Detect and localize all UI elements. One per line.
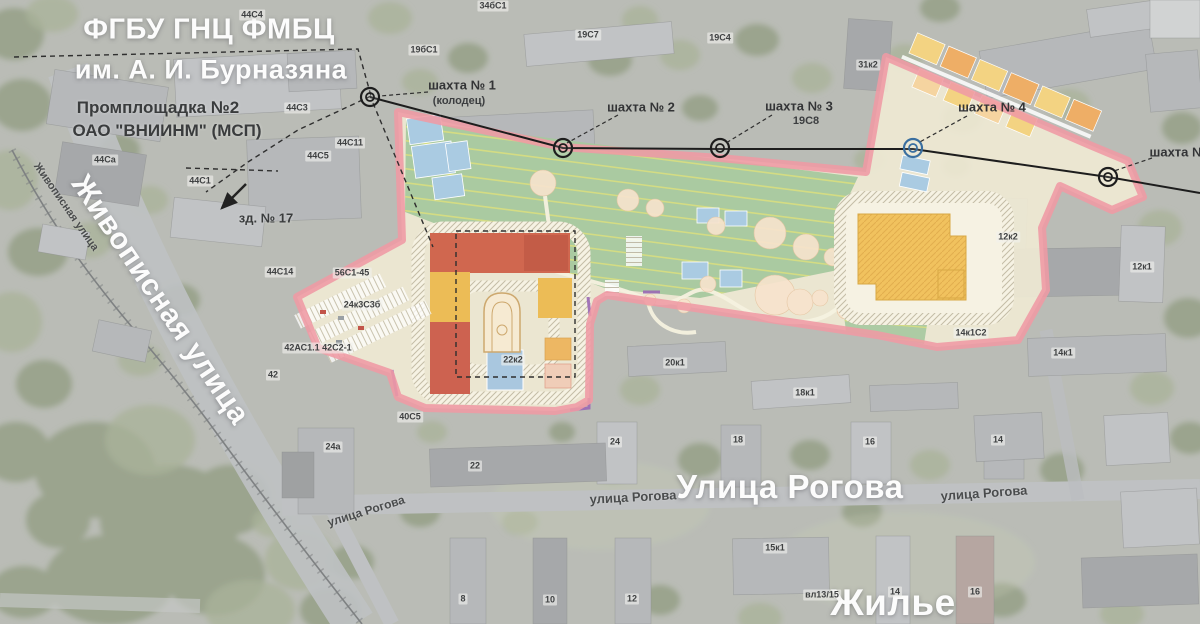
shaft-label-5: шахта № (1150, 145, 1200, 160)
shaft-marker-3 (711, 139, 729, 157)
building-label: 16 (968, 587, 982, 598)
site-plan-map-graphics (0, 0, 1200, 624)
building-block-yellow-left (430, 272, 470, 322)
building-label: 18 (731, 435, 745, 446)
building-label: 42АС1.1 42С2-1 (282, 343, 353, 354)
shaft-sublabel-1: (колодец) (433, 95, 485, 107)
shaft-marker-1 (361, 88, 379, 106)
building-label: 24 (608, 437, 622, 448)
building-label: 19С4 (707, 33, 733, 44)
shaft-label-1: шахта № 1 (428, 78, 496, 93)
building-label: 8 (458, 594, 467, 605)
building-label: 44Са (92, 155, 118, 166)
building-block-yellow-right (538, 278, 572, 318)
building-label: 19бС1 (408, 45, 439, 56)
building-label: 44С14 (265, 267, 296, 278)
building-label: 22 (468, 461, 482, 472)
building-label: 16 (863, 437, 877, 448)
building-label: 44С5 (305, 151, 331, 162)
aerial-site-plan: ФГБУ ГНЦ ФМБЦ им. А. И. Бурназяна Промпл… (0, 0, 1200, 624)
building-label: 24а (323, 442, 342, 453)
building-block-red-left (430, 322, 470, 394)
building-label: 22к2 (501, 355, 525, 366)
building-label: 44С1 (187, 176, 213, 187)
building-label: 14 (888, 587, 902, 598)
building-label: 34бС1 (477, 1, 508, 12)
shaft-label-3: шахта № 3 (765, 99, 833, 114)
building-label: 12к2 (996, 232, 1020, 243)
building-label: 42 (266, 370, 280, 381)
building-label: 56С1-45 (333, 268, 372, 279)
building-label: 20к1 (663, 358, 687, 369)
building-label: 44С11 (335, 138, 365, 149)
shaft-label-4: шахта № 4 (958, 100, 1026, 115)
building-label: 10 (543, 595, 557, 606)
building-label: 31к2 (856, 60, 880, 71)
building-label: вл13/15 (803, 590, 841, 601)
building-label: 44С3 (284, 103, 310, 114)
building-label: 44С4 (239, 10, 265, 21)
building-label: 19С7 (575, 30, 601, 41)
shaft-label-2: шахта № 2 (607, 100, 675, 115)
building-label: 14к1С2 (953, 328, 988, 339)
building-label: 18к1 (793, 388, 817, 399)
building-label: 12 (625, 594, 639, 605)
building-label: 15к1 (763, 543, 787, 554)
shaft-marker-2 (554, 139, 572, 157)
building-label: 14 (991, 435, 1005, 446)
shaft-sublabel-3: 19С8 (793, 115, 819, 127)
building-label: 40С5 (397, 412, 423, 423)
building-label: 14к1 (1051, 348, 1075, 359)
shaft-marker-5 (1099, 168, 1117, 186)
building-label: 12к1 (1130, 262, 1154, 273)
shaft-marker-4 (904, 139, 922, 157)
building-label: 24к3С3б (342, 300, 383, 311)
school-block (840, 197, 1008, 319)
